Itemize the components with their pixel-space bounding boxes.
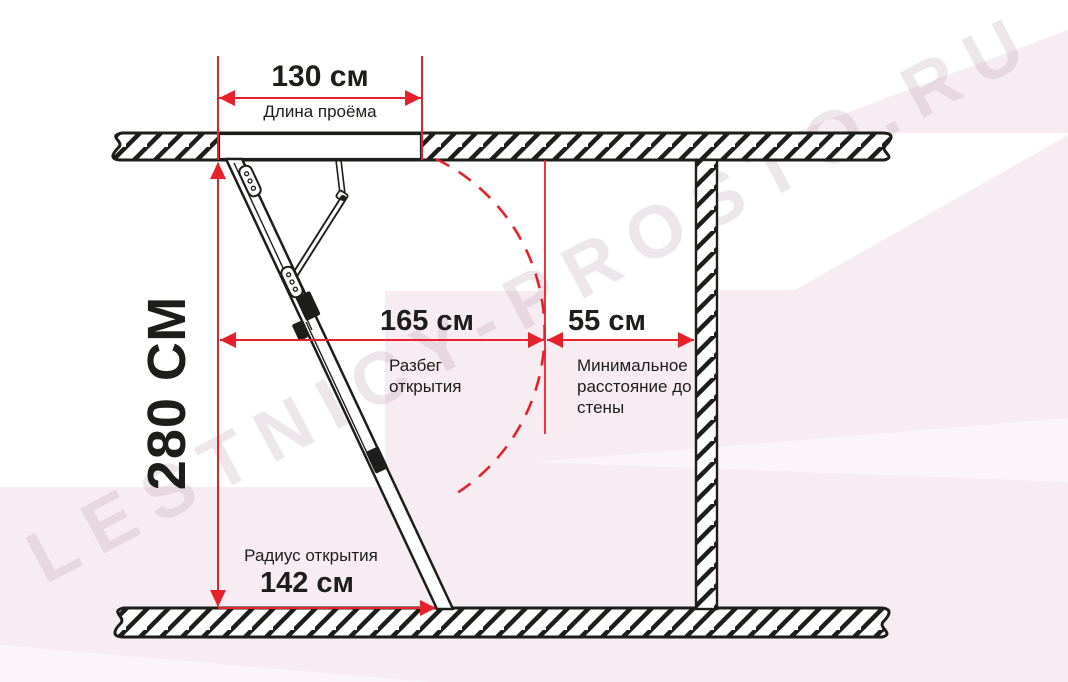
opening-span-label: Разбег открытия — [389, 355, 481, 397]
opening-radius-label: Радиус открытия — [244, 545, 378, 566]
wall-distance-value: 55 см — [568, 305, 646, 338]
opening-radius-value: 142 см — [260, 567, 354, 600]
wall — [696, 160, 717, 609]
opening-length-label: Длина проёма — [263, 101, 376, 122]
floor-band — [115, 608, 889, 637]
opening-length-value: 130 см — [271, 60, 368, 94]
ceiling-opening — [219, 134, 421, 159]
opening-span-value: 165 см — [380, 305, 474, 338]
wall-distance-label: Минимальное расстояние до стены — [577, 355, 697, 418]
attic-ladder-installation-diagram: LESTNICY-PROSTO.RU — [0, 0, 1068, 682]
ceiling-height-value: 280 СМ — [136, 296, 198, 490]
